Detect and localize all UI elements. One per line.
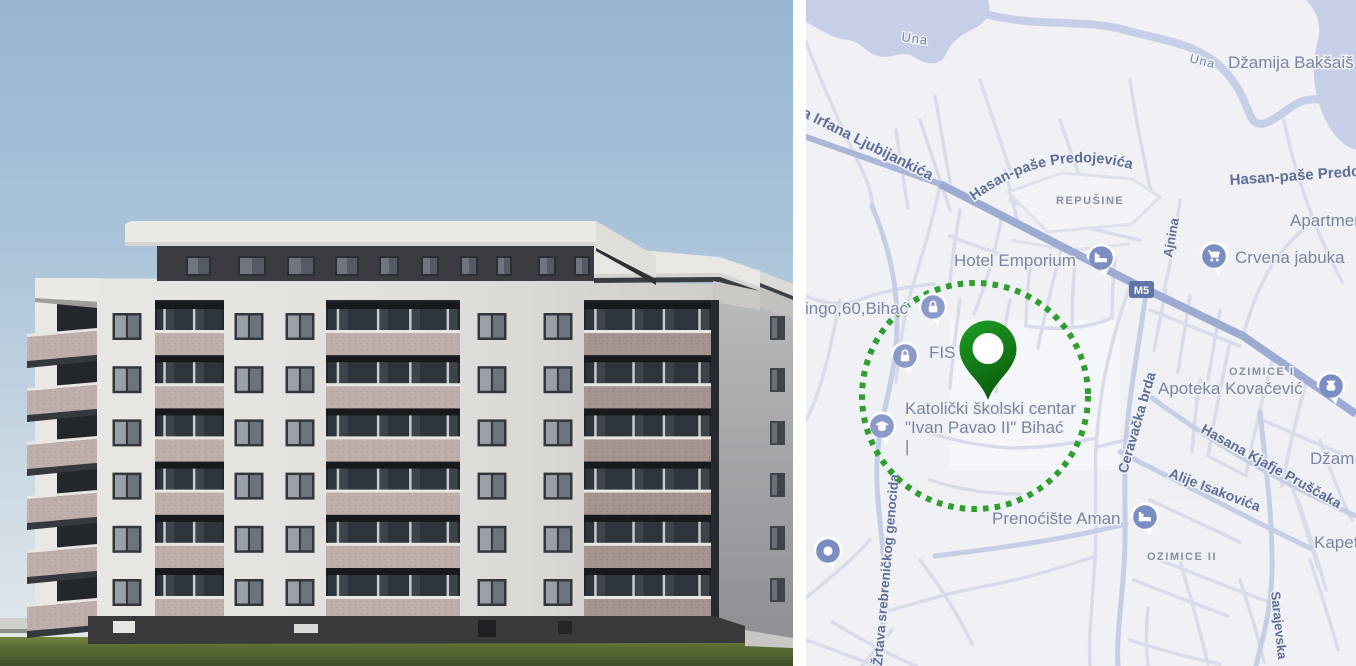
svg-text:|: | xyxy=(905,437,909,456)
svg-text:REPUŠINE: REPUŠINE xyxy=(1056,194,1124,207)
svg-text:Džam: Džam xyxy=(1310,449,1354,468)
svg-text:ingo,60,Bihać: ingo,60,Bihać xyxy=(806,299,909,318)
svg-text:OZIMICE I: OZIMICE I xyxy=(1229,366,1294,378)
svg-text:Apartmen: Apartmen xyxy=(1290,211,1356,230)
svg-text:Prenoćište Aman: Prenoćište Aman xyxy=(992,509,1121,528)
svg-text:Kapet: Kapet xyxy=(1314,533,1356,552)
svg-text:M5: M5 xyxy=(1134,285,1149,297)
svg-text:OZIMICE II: OZIMICE II xyxy=(1147,551,1217,563)
svg-text:FIS: FIS xyxy=(929,343,955,362)
svg-text:Džamija Bakšaiš: Džamija Bakšaiš xyxy=(1228,53,1354,72)
svg-text:"Ivan Pavao II" Bihać: "Ivan Pavao II" Bihać xyxy=(905,418,1064,437)
svg-text:Katolički školski centar: Katolički školski centar xyxy=(905,399,1076,418)
svg-text:Crvena jabuka: Crvena jabuka xyxy=(1235,248,1345,267)
svg-text:Apoteka Kovačević: Apoteka Kovačević xyxy=(1158,379,1303,398)
svg-text:Hotel Emporium: Hotel Emporium xyxy=(954,251,1076,270)
